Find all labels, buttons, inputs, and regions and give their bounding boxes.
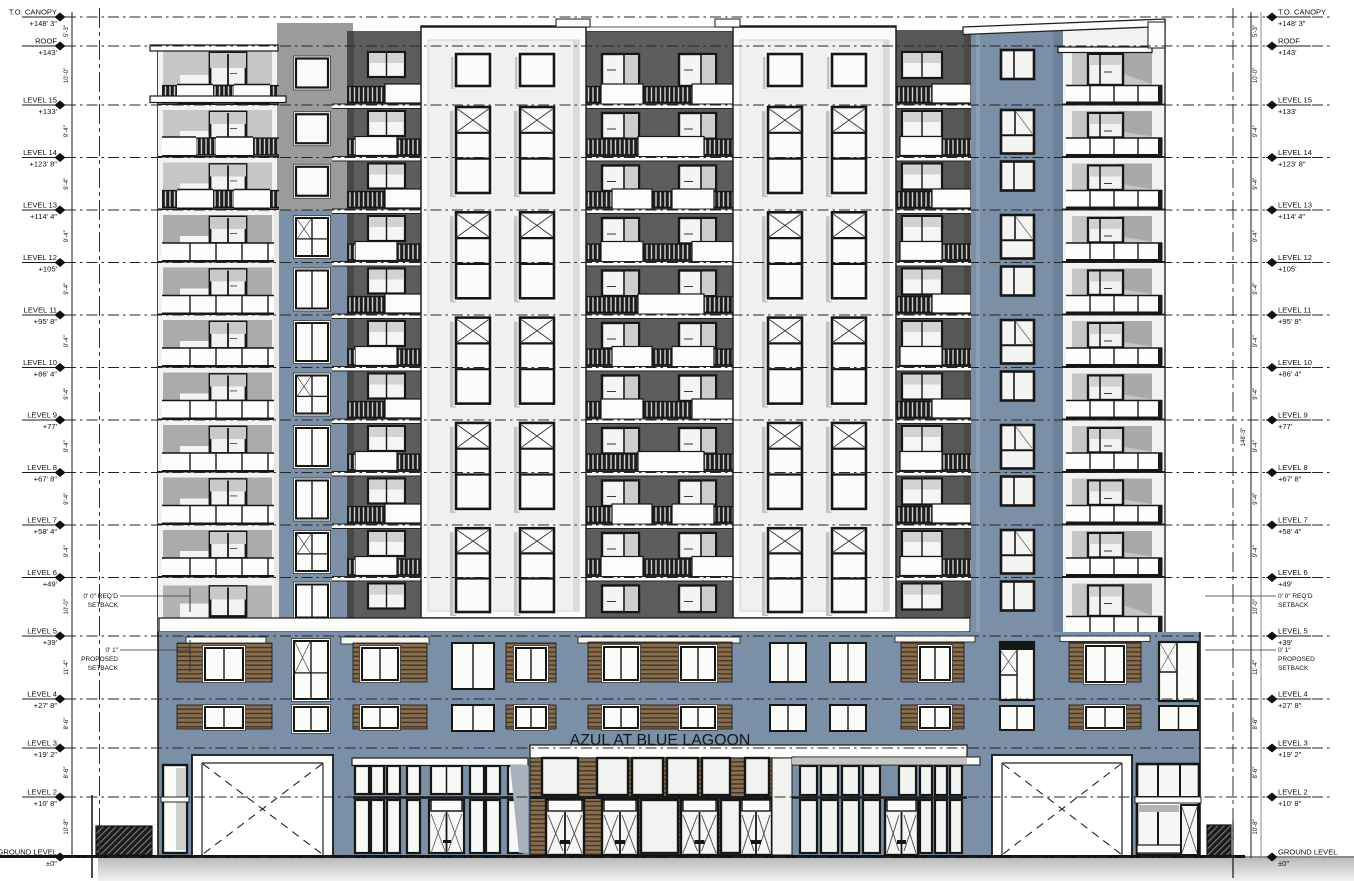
svg-text:+67′ 8″: +67′ 8″ [1278, 475, 1302, 484]
svg-text:PROPOSED: PROPOSED [81, 656, 118, 663]
svg-text:9'-4″: 9'-4″ [64, 439, 70, 452]
svg-text:9'-4″: 9'-4″ [1253, 177, 1259, 190]
svg-text:LEVEL 12: LEVEL 12 [23, 253, 57, 262]
svg-text:+114′ 4″: +114′ 4″ [1278, 212, 1305, 221]
svg-text:+86′ 4″: +86′ 4″ [1278, 370, 1302, 379]
svg-text:LEVEL 13: LEVEL 13 [23, 201, 57, 210]
svg-text:9'-4″: 9'-4″ [64, 387, 70, 400]
svg-text:T.O. CANOPY: T.O. CANOPY [1278, 8, 1326, 17]
svg-text:8'-6″: 8'-6″ [1253, 766, 1259, 779]
svg-text:+114′ 4″: +114′ 4″ [30, 212, 57, 221]
svg-text:+49′: +49′ [43, 580, 58, 589]
svg-text:+123′ 8″: +123′ 8″ [1278, 160, 1306, 169]
svg-text:LEVEL 14: LEVEL 14 [1278, 148, 1312, 157]
svg-text:LEVEL 3: LEVEL 3 [27, 739, 57, 748]
svg-text:5'-3″: 5'-3″ [1253, 24, 1259, 37]
svg-text:LEVEL 11: LEVEL 11 [24, 306, 57, 315]
svg-text:LEVEL 3: LEVEL 3 [1278, 739, 1308, 748]
svg-text:10'-0″: 10'-0″ [64, 67, 70, 83]
svg-text:11'-4″: 11'-4″ [1253, 659, 1259, 675]
svg-text:8'-6″: 8'-6″ [64, 766, 70, 779]
svg-text:5'-3″: 5'-3″ [64, 24, 70, 37]
svg-text:+58′ 4″: +58′ 4″ [1278, 527, 1302, 536]
svg-text:10'-0″: 10'-0″ [1253, 598, 1259, 614]
svg-text:9'-4″: 9'-4″ [1253, 229, 1259, 242]
svg-text:LEVEL 12: LEVEL 12 [1278, 253, 1312, 262]
svg-text:PROPOSED: PROPOSED [1278, 656, 1315, 663]
svg-text:SETBACK: SETBACK [1278, 602, 1309, 609]
svg-text:+39′: +39′ [43, 638, 58, 647]
svg-text:LEVEL 4: LEVEL 4 [27, 690, 57, 699]
svg-text:+39′: +39′ [1278, 638, 1293, 647]
svg-text:LEVEL 7: LEVEL 7 [27, 516, 57, 525]
svg-text:+148′ 3″: +148′ 3″ [1278, 19, 1306, 28]
svg-text:+148′ 3″: +148′ 3″ [29, 19, 57, 28]
svg-text:+19′ 2″: +19′ 2″ [34, 750, 58, 759]
svg-text:10'-8″: 10'-8″ [64, 818, 70, 834]
svg-text:+10′ 8″: +10′ 8″ [1278, 799, 1302, 808]
svg-text:LEVEL 2: LEVEL 2 [1278, 788, 1308, 797]
svg-text:GROUND LEVEL: GROUND LEVEL [1278, 848, 1338, 857]
svg-text:9'-4″: 9'-4″ [1253, 492, 1259, 505]
svg-text:LEVEL 15: LEVEL 15 [1278, 96, 1312, 105]
svg-text:+58′ 4″: +58′ 4″ [34, 527, 58, 536]
svg-text:9'-4″: 9'-4″ [64, 282, 70, 295]
svg-text:LEVEL 9: LEVEL 9 [1278, 411, 1308, 420]
svg-text:9'-4″: 9'-4″ [1253, 282, 1259, 295]
svg-text:LEVEL 11: LEVEL 11 [1278, 306, 1311, 315]
svg-text:+133′: +133′ [1278, 107, 1297, 116]
svg-text:11'-4″: 11'-4″ [64, 659, 70, 675]
svg-text:9'-4″: 9'-4″ [1253, 387, 1259, 400]
svg-text:+77′: +77′ [43, 422, 58, 431]
svg-text:+19′ 2″: +19′ 2″ [1278, 750, 1302, 759]
svg-text:+77′: +77′ [1278, 422, 1293, 431]
svg-text:LEVEL 6: LEVEL 6 [27, 568, 57, 577]
svg-text:0′ 0″ REQ’D: 0′ 0″ REQ’D [83, 593, 118, 600]
svg-text:10'-0″: 10'-0″ [1253, 67, 1259, 83]
svg-text:9'-4″: 9'-4″ [1253, 334, 1259, 347]
svg-text:9'-4″: 9'-4″ [1253, 544, 1259, 557]
svg-text:LEVEL 8: LEVEL 8 [27, 463, 57, 472]
svg-text:9'-4″: 9'-4″ [64, 334, 70, 347]
svg-text:0′ 1″: 0′ 1″ [105, 647, 118, 654]
svg-text:+105′: +105′ [1278, 265, 1297, 274]
svg-text:+133′: +133′ [38, 107, 57, 116]
svg-text:+67′ 8″: +67′ 8″ [34, 475, 58, 484]
svg-text:0′ 0″ REQ’D: 0′ 0″ REQ’D [1278, 593, 1313, 600]
svg-text:9'-4″: 9'-4″ [64, 544, 70, 557]
svg-text:LEVEL 5: LEVEL 5 [1278, 627, 1308, 636]
svg-text:148'-3″: 148'-3″ [1241, 427, 1247, 446]
svg-text:GROUND LEVEL: GROUND LEVEL [0, 848, 57, 857]
svg-text:+86′ 4″: +86′ 4″ [34, 370, 58, 379]
svg-text:9'-4″: 9'-4″ [64, 229, 70, 242]
svg-text:+143′: +143′ [38, 48, 57, 57]
svg-text:ROOF: ROOF [1278, 37, 1300, 46]
svg-text:+95′ 8″: +95′ 8″ [34, 317, 58, 326]
svg-text:+49′: +49′ [1278, 580, 1293, 589]
svg-text:LEVEL 2: LEVEL 2 [27, 788, 57, 797]
svg-text:9'-4″: 9'-4″ [64, 124, 70, 137]
svg-text:LEVEL 15: LEVEL 15 [23, 96, 57, 105]
svg-text:SETBACK: SETBACK [88, 665, 119, 672]
svg-text:+95′ 8″: +95′ 8″ [1278, 317, 1302, 326]
svg-text:LEVEL 14: LEVEL 14 [23, 148, 57, 157]
svg-text:+143′: +143′ [1278, 48, 1297, 57]
svg-text:LEVEL 6: LEVEL 6 [1278, 568, 1308, 577]
svg-text:LEVEL 10: LEVEL 10 [23, 358, 57, 367]
svg-text:8'-6″: 8'-6″ [64, 717, 70, 730]
svg-text:9'-4″: 9'-4″ [64, 177, 70, 190]
svg-text:LEVEL 4: LEVEL 4 [1278, 690, 1308, 699]
svg-text:9'-4″: 9'-4″ [64, 492, 70, 505]
svg-text:10'-8″: 10'-8″ [1253, 818, 1259, 834]
svg-text:+105′: +105′ [38, 265, 57, 274]
svg-text:±0″: ±0″ [1278, 859, 1289, 868]
svg-text:LEVEL 7: LEVEL 7 [1278, 516, 1308, 525]
svg-text:LEVEL 13: LEVEL 13 [1278, 201, 1312, 210]
svg-text:9'-4″: 9'-4″ [1253, 124, 1259, 137]
svg-text:10'-0″: 10'-0″ [64, 598, 70, 614]
svg-text:LEVEL 10: LEVEL 10 [1278, 358, 1312, 367]
svg-text:±0″: ±0″ [46, 859, 57, 868]
svg-text:+10′ 8″: +10′ 8″ [34, 799, 58, 808]
svg-text:8'-6″: 8'-6″ [1253, 717, 1259, 730]
svg-text:LEVEL 8: LEVEL 8 [1278, 463, 1308, 472]
svg-text:T.O. CANOPY: T.O. CANOPY [9, 8, 57, 17]
svg-text:LEVEL 9: LEVEL 9 [27, 411, 57, 420]
svg-text:0′ 1″: 0′ 1″ [1278, 647, 1291, 654]
svg-text:LEVEL 5: LEVEL 5 [27, 627, 57, 636]
svg-text:9'-4″: 9'-4″ [1253, 439, 1259, 452]
svg-text:SETBACK: SETBACK [88, 602, 119, 609]
svg-text:+27′ 8″: +27′ 8″ [34, 701, 58, 710]
svg-text:+123′ 8″: +123′ 8″ [29, 160, 57, 169]
svg-text:SETBACK: SETBACK [1278, 665, 1309, 672]
svg-text:ROOF: ROOF [35, 37, 57, 46]
svg-text:+27′ 8″: +27′ 8″ [1278, 701, 1302, 710]
